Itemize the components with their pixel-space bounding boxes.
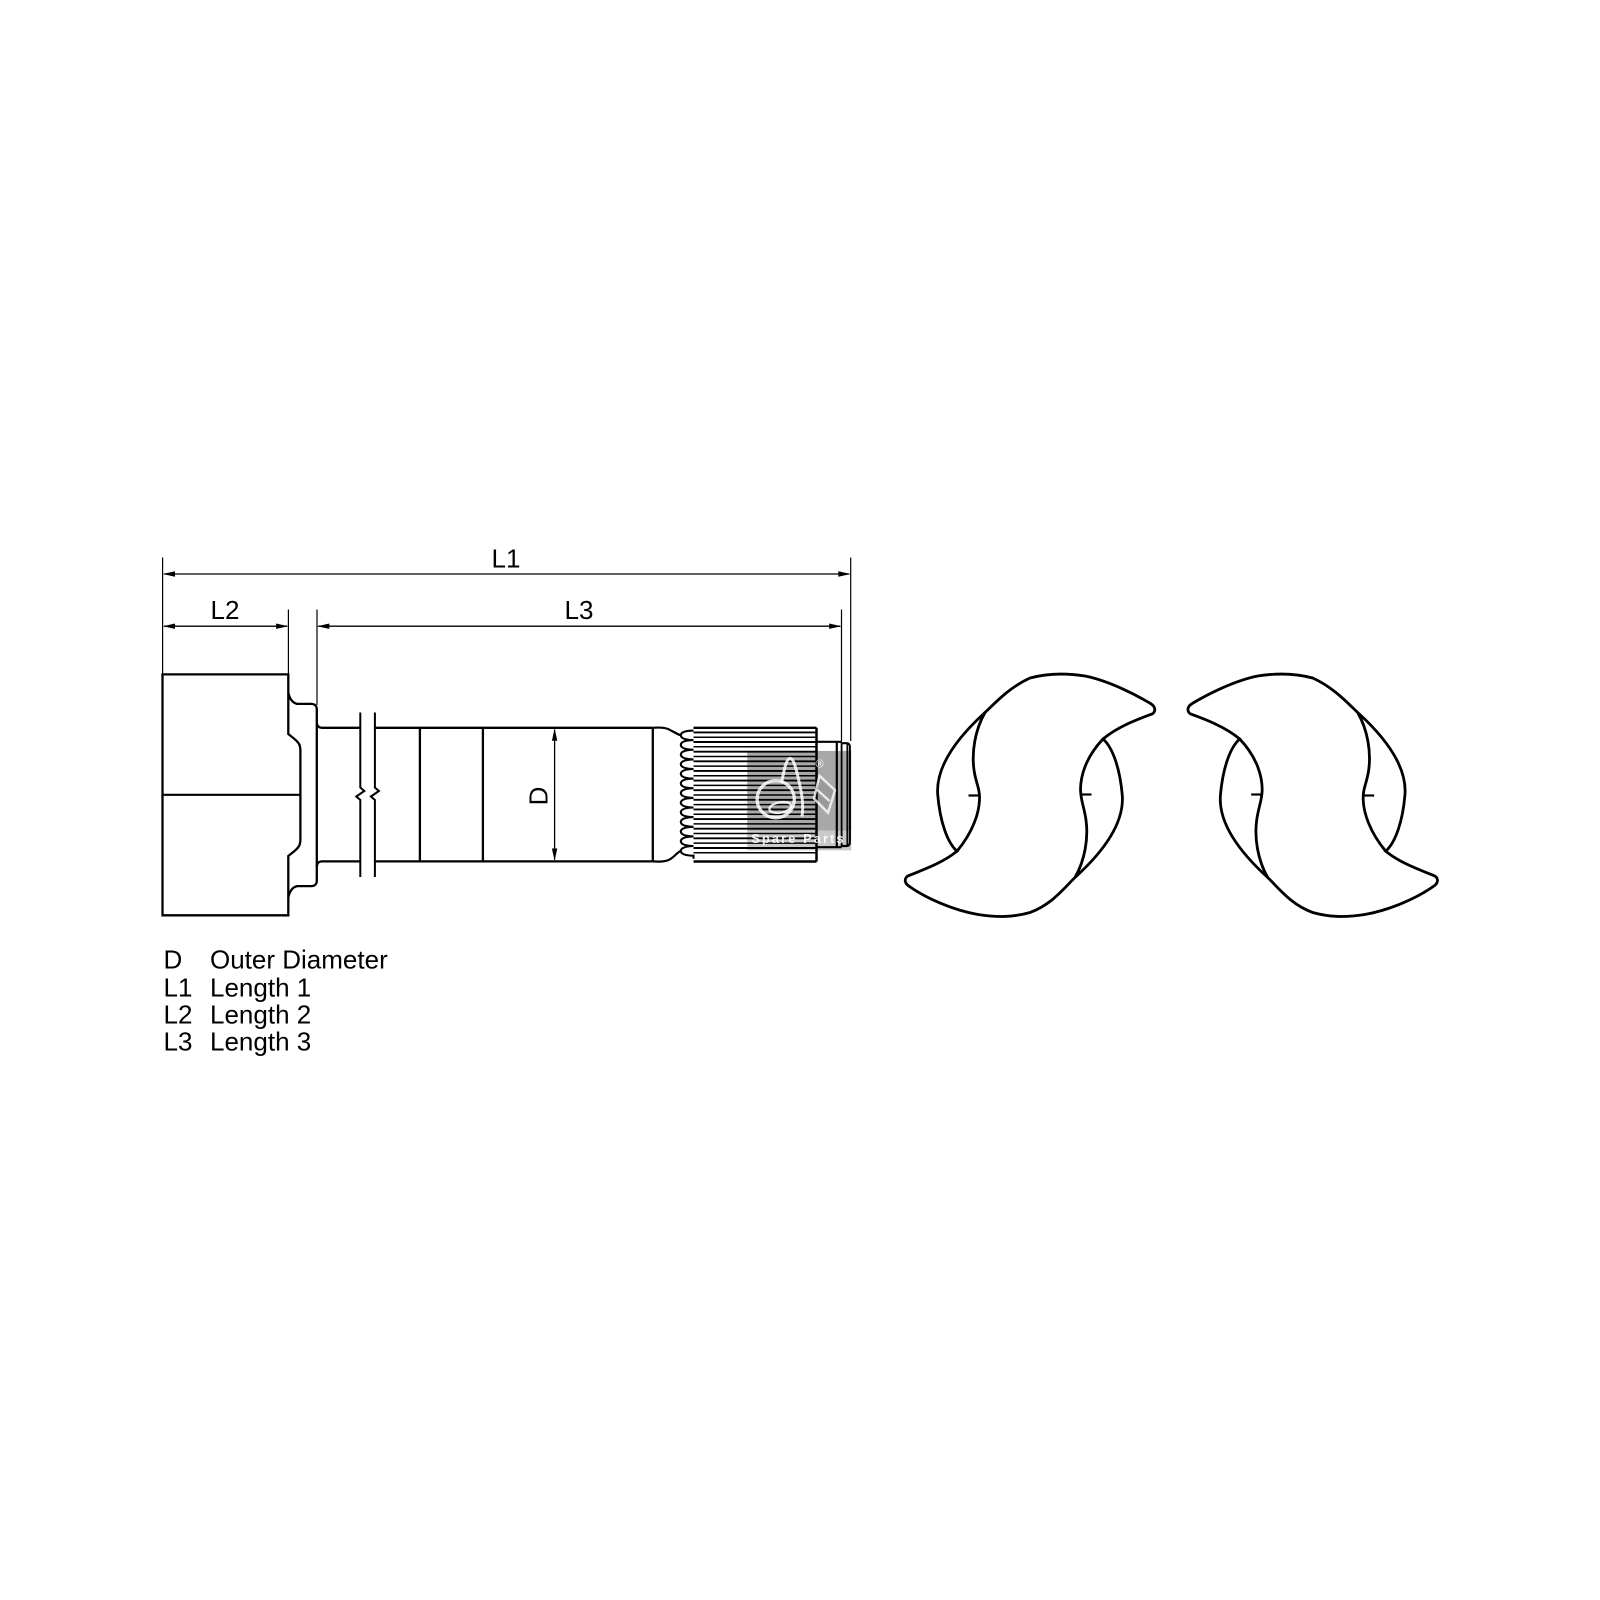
svg-text:L3: L3 — [164, 1027, 193, 1057]
svg-text:L2: L2 — [164, 1000, 193, 1030]
svg-text:Length 1: Length 1 — [210, 973, 311, 1003]
svg-text:L1: L1 — [492, 544, 521, 574]
svg-text:Outer Diameter: Outer Diameter — [210, 944, 388, 974]
svg-text:Length 3: Length 3 — [210, 1027, 311, 1057]
svg-text:Spare Parts: Spare Parts — [751, 831, 845, 846]
svg-text:L2: L2 — [211, 595, 240, 625]
svg-text:L3: L3 — [565, 595, 594, 625]
svg-text:D: D — [164, 944, 183, 974]
svg-text:D: D — [524, 787, 554, 806]
svg-text:L1: L1 — [164, 973, 193, 1003]
svg-text:®: ® — [816, 759, 824, 771]
svg-text:Length 2: Length 2 — [210, 1000, 311, 1030]
